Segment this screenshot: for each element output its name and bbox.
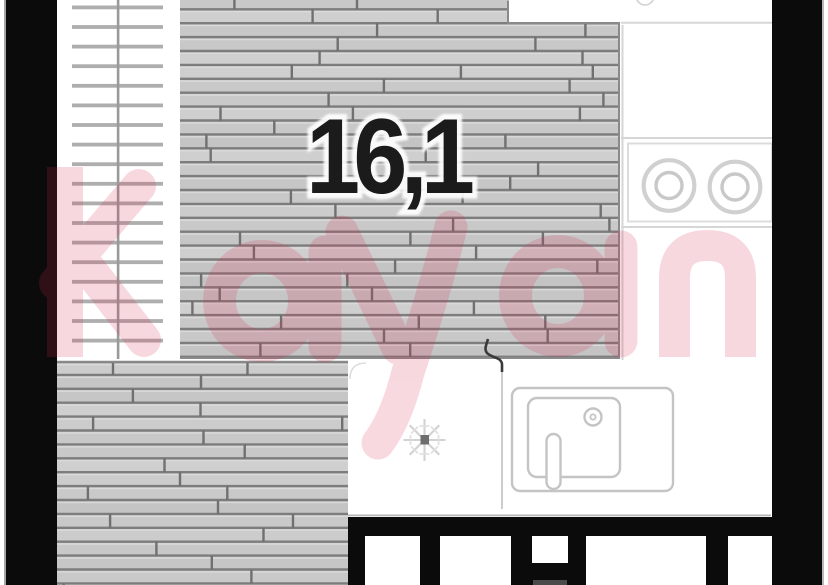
svg-text:16,1: 16,1 xyxy=(306,96,473,216)
